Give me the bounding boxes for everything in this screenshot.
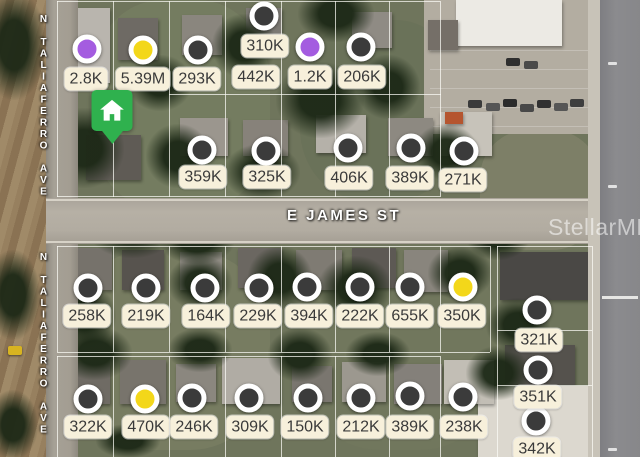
property-dot-222K[interactable] bbox=[346, 273, 375, 302]
price-label-164K[interactable]: 164K bbox=[182, 305, 229, 328]
property-dot-5.39M[interactable] bbox=[129, 36, 158, 65]
pin-tail bbox=[100, 129, 124, 144]
price-label-322K[interactable]: 322K bbox=[64, 416, 111, 439]
property-dot-150K[interactable] bbox=[294, 384, 323, 413]
price-label-293K[interactable]: 293K bbox=[173, 68, 220, 91]
street-label-taliaferro-bottom: N TALIAFERRO AVE bbox=[38, 252, 49, 436]
property-dot-351K[interactable] bbox=[524, 356, 553, 385]
price-label-359K[interactable]: 359K bbox=[179, 166, 226, 189]
house-icon bbox=[99, 98, 126, 123]
price-label-5.39M[interactable]: 5.39M bbox=[116, 68, 170, 91]
price-label-1.2K[interactable]: 1.2K bbox=[289, 66, 332, 89]
property-dot-470K[interactable] bbox=[131, 385, 160, 414]
price-label-325K[interactable]: 325K bbox=[243, 166, 290, 189]
property-dot-389K[interactable] bbox=[397, 134, 426, 163]
price-label-258K[interactable]: 258K bbox=[63, 305, 110, 328]
property-dot-246K[interactable] bbox=[178, 384, 207, 413]
price-label-238K[interactable]: 238K bbox=[440, 416, 487, 439]
property-dot-238K[interactable] bbox=[449, 383, 478, 412]
property-dot-342K[interactable] bbox=[522, 407, 551, 436]
satellite-map[interactable]: N TALIAFERRO AVE N TALIAFERRO AVE E JAME… bbox=[0, 0, 640, 457]
home-pin bbox=[92, 90, 133, 131]
price-label-310K[interactable]: 310K bbox=[241, 35, 288, 58]
price-label-351K[interactable]: 351K bbox=[514, 386, 561, 409]
price-label-389K[interactable]: 389K bbox=[386, 167, 433, 190]
price-label-309K[interactable]: 309K bbox=[226, 416, 273, 439]
price-label-655K[interactable]: 655K bbox=[386, 305, 433, 328]
property-dot-389K-south[interactable] bbox=[396, 382, 425, 411]
price-label-206K[interactable]: 206K bbox=[338, 66, 385, 89]
street-label-taliaferro-top: N TALIAFERRO AVE bbox=[38, 14, 49, 198]
price-label-2.8K[interactable]: 2.8K bbox=[65, 68, 108, 91]
building-roof bbox=[456, 0, 562, 46]
price-label-442K[interactable]: 442K bbox=[232, 66, 279, 89]
property-dot-293K[interactable] bbox=[184, 36, 213, 65]
property-dot-212K[interactable] bbox=[347, 384, 376, 413]
price-label-321K[interactable]: 321K bbox=[515, 329, 562, 352]
property-dot-271K[interactable] bbox=[450, 137, 479, 166]
property-dot-655K[interactable] bbox=[396, 273, 425, 302]
property-dot-206K[interactable] bbox=[347, 33, 376, 62]
property-dot-229K[interactable] bbox=[245, 274, 274, 303]
price-label-394K[interactable]: 394K bbox=[285, 305, 332, 328]
price-label-229K[interactable]: 229K bbox=[234, 305, 281, 328]
property-dot-325K[interactable] bbox=[252, 137, 281, 166]
property-dot-406K[interactable] bbox=[334, 134, 363, 163]
price-label-212K[interactable]: 212K bbox=[337, 416, 384, 439]
price-label-470K[interactable]: 470K bbox=[122, 416, 169, 439]
selected-property-marker[interactable] bbox=[92, 90, 133, 144]
price-label-350K[interactable]: 350K bbox=[438, 305, 485, 328]
property-dot-350K[interactable] bbox=[449, 273, 478, 302]
price-label-150K[interactable]: 150K bbox=[281, 416, 328, 439]
property-dot-322K[interactable] bbox=[74, 385, 103, 414]
property-dot-2.8K[interactable] bbox=[73, 35, 102, 64]
property-dot-321K[interactable] bbox=[523, 296, 552, 325]
property-dot-219K[interactable] bbox=[132, 274, 161, 303]
property-dot-309K[interactable] bbox=[235, 384, 264, 413]
price-label-342K[interactable]: 342K bbox=[513, 438, 560, 457]
property-dot-258K[interactable] bbox=[74, 274, 103, 303]
price-label-271K[interactable]: 271K bbox=[439, 169, 486, 192]
price-label-246K[interactable]: 246K bbox=[170, 416, 217, 439]
price-label-219K[interactable]: 219K bbox=[122, 305, 169, 328]
price-label-222K[interactable]: 222K bbox=[336, 305, 383, 328]
property-dot-1.2K[interactable] bbox=[296, 33, 325, 62]
property-dot-394K[interactable] bbox=[293, 273, 322, 302]
property-dot-310K[interactable] bbox=[250, 2, 279, 31]
excavator bbox=[8, 346, 22, 355]
price-label-406K[interactable]: 406K bbox=[325, 167, 372, 190]
property-dot-164K[interactable] bbox=[191, 274, 220, 303]
price-label-389K-south[interactable]: 389K bbox=[386, 416, 433, 439]
property-dot-359K[interactable] bbox=[188, 136, 217, 165]
stellar-mls-watermark: StellarMLS bbox=[548, 214, 640, 241]
street-label-james: E JAMES ST bbox=[287, 207, 401, 224]
